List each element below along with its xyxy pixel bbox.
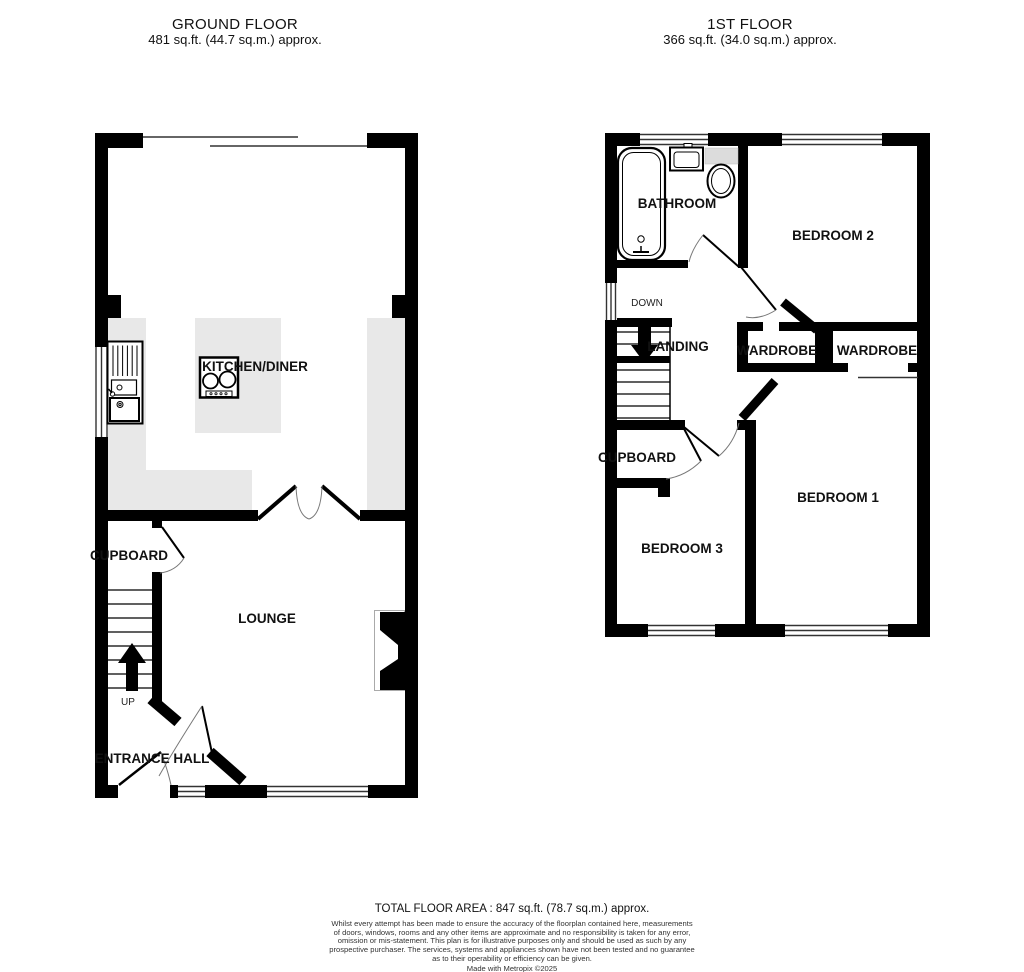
wall-stub [152, 572, 162, 587]
door-leaf [681, 423, 701, 461]
wall [95, 785, 118, 798]
up-arrow [118, 643, 146, 691]
label-lounge: LOUNGE [238, 611, 296, 626]
wall-stub [658, 478, 670, 497]
window [267, 785, 368, 798]
label-up: UP [121, 697, 135, 708]
door-arc [689, 235, 703, 262]
total-floor-area: TOTAL FLOOR AREA : 847 sq.ft. (78.7 sq.m… [0, 903, 1024, 915]
kitchen-sink-unit [108, 342, 143, 424]
wall [708, 133, 782, 146]
window [782, 133, 882, 146]
first-floor-plan: BATHROOM BEDROOM 2 DOWN LANDING WARDROBE… [598, 133, 930, 637]
label-bedroom2: BEDROOM 2 [792, 228, 874, 243]
wall-pier [392, 295, 418, 318]
metropix-credit: Made with Metropix ©2025 [0, 964, 1024, 972]
label-wardrobe-left: WARDROBE [737, 343, 817, 358]
wall [605, 478, 665, 488]
wall [745, 425, 756, 628]
wall-stub [737, 420, 756, 430]
wall-stub [152, 515, 162, 528]
wall [95, 133, 143, 148]
wall-stub [908, 363, 920, 372]
label-landing: LANDING [647, 339, 709, 354]
stairs-down [617, 318, 670, 420]
wall [605, 260, 688, 268]
wall [360, 510, 405, 521]
door-leaf [258, 486, 296, 519]
wall [170, 785, 178, 798]
window [648, 624, 715, 637]
angled-wall [742, 381, 775, 418]
door-leaf [202, 706, 212, 753]
counter [146, 470, 252, 512]
label-bedroom3: BEDROOM 3 [641, 541, 723, 556]
wall [368, 785, 418, 798]
wall [888, 624, 930, 637]
angled-wall [210, 752, 243, 781]
label-down: DOWN [631, 298, 663, 309]
wall-pier [95, 295, 121, 318]
wall [405, 133, 418, 798]
wall [605, 624, 648, 637]
label-cupboard-ground: CUPBOARD [90, 548, 168, 563]
wall [205, 785, 267, 798]
door-leaf [684, 427, 719, 456]
wall [108, 510, 258, 521]
angled-wall [151, 699, 178, 722]
door-leaf [741, 267, 776, 310]
wall [152, 587, 162, 703]
window [605, 283, 617, 320]
disclaimer-line: as to their operability or efficiency ca… [0, 955, 1024, 964]
window [178, 785, 205, 798]
label-kitchen-diner: KITCHEN/DINER [202, 359, 308, 374]
door-arc [309, 486, 322, 519]
label-entrance-hall: ENTRANCE HALL [95, 751, 210, 766]
window [640, 133, 708, 146]
label-bathroom: BATHROOM [638, 196, 717, 211]
label-wardrobe-right: WARDROBE [837, 343, 917, 358]
floorplan-drawing: KITCHEN/DINER CUPBOARD LOUNGE UP ENTRANC… [0, 0, 1024, 900]
door-arc [296, 486, 309, 519]
footer: TOTAL FLOOR AREA : 847 sq.ft. (78.7 sq.m… [0, 903, 1024, 972]
disclaimer: Whilst every attempt has been made to en… [0, 920, 1024, 963]
wall [917, 133, 930, 637]
counter [367, 318, 405, 510]
label-cupboard-first: CUPBOARD [598, 450, 676, 465]
kitchen-counters [108, 318, 405, 512]
wall [779, 322, 920, 331]
wall [737, 363, 848, 372]
door-leaf [322, 486, 360, 519]
ground-floor-plan: KITCHEN/DINER CUPBOARD LOUNGE UP ENTRANC… [90, 133, 418, 798]
floorplan-page: GROUND FLOOR 481 sq.ft. (44.7 sq.m.) app… [0, 0, 1024, 972]
door-arc [746, 310, 776, 318]
window [785, 624, 888, 637]
toilet [705, 148, 738, 198]
wall [95, 437, 108, 798]
wall [605, 420, 685, 430]
chimney-breast [375, 611, 406, 691]
door-arc [719, 423, 739, 456]
label-bedroom1: BEDROOM 1 [797, 490, 879, 505]
door-leaf [703, 235, 739, 267]
window [95, 347, 108, 437]
wall [738, 146, 748, 268]
stairs-up [108, 590, 152, 691]
bathroom-sink [670, 144, 703, 171]
